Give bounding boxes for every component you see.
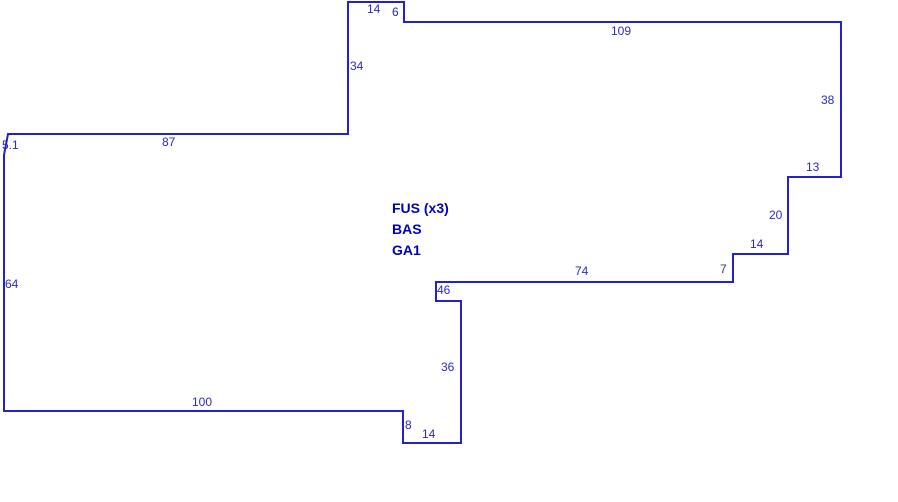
floorplan-svg [0, 0, 898, 502]
sketch-canvas: 14610934385.187132014774466436100814FUS … [0, 0, 898, 502]
floorplan-outline[interactable] [4, 2, 841, 443]
